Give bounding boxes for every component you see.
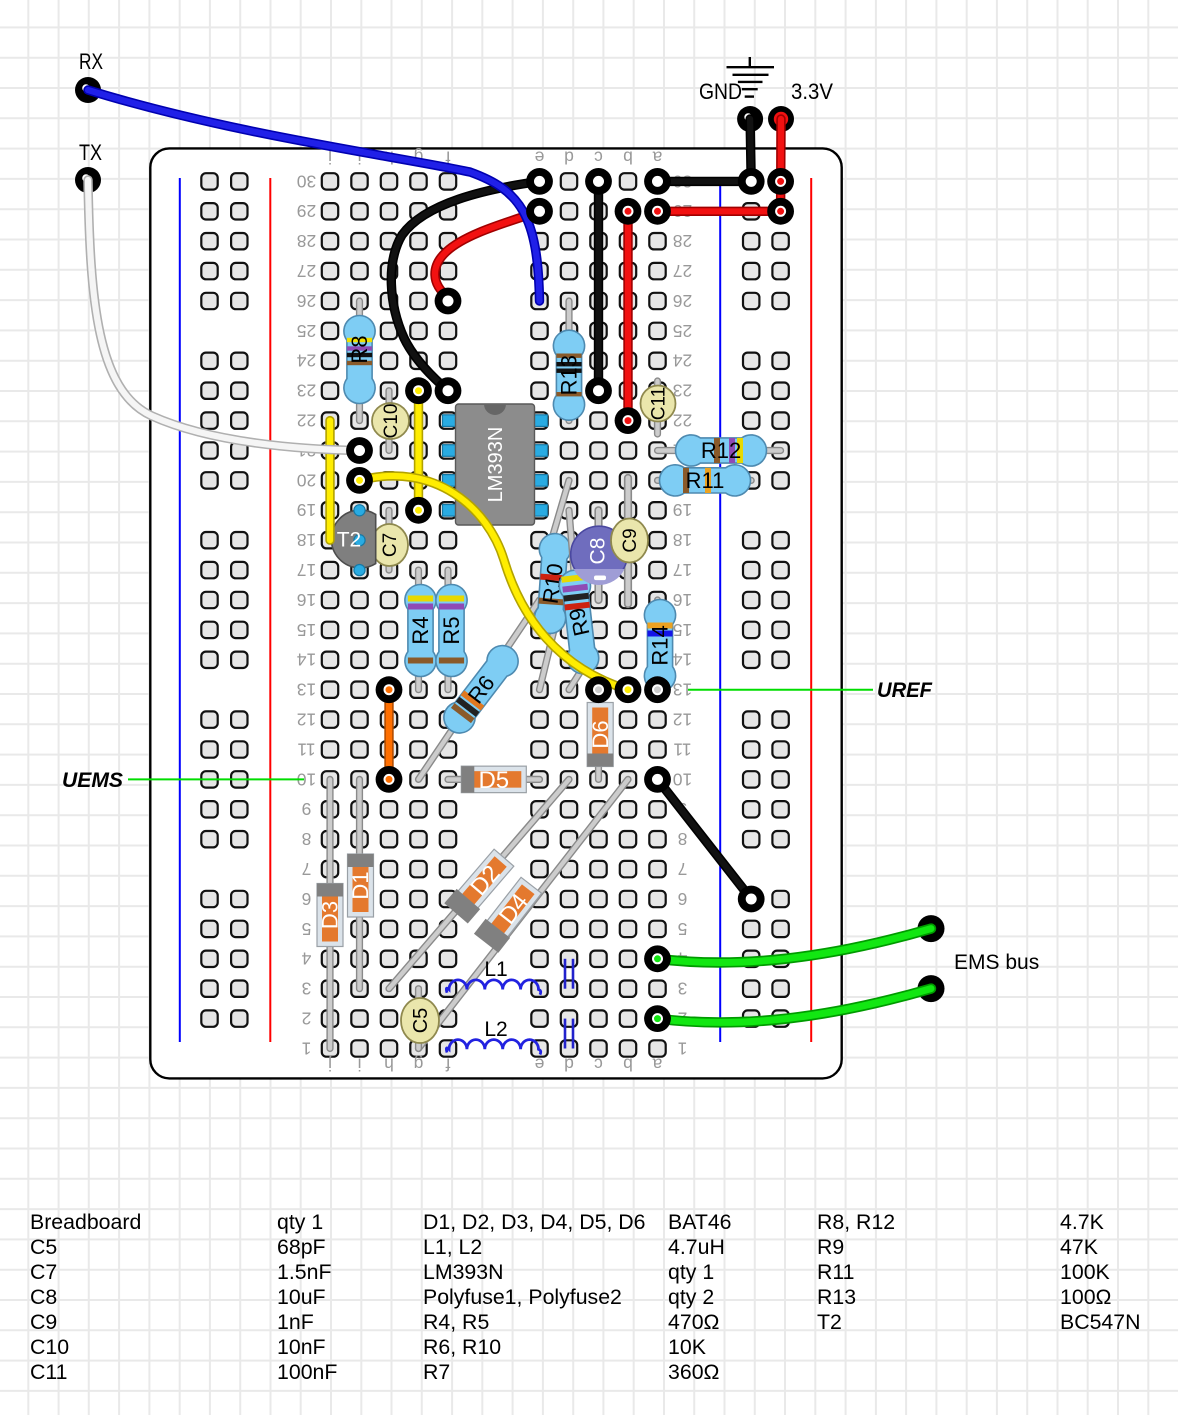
svg-text:R9: R9 [817, 1235, 844, 1259]
svg-text:12: 12 [297, 709, 316, 729]
svg-text:C7: C7 [30, 1260, 57, 1284]
svg-text:R7: R7 [423, 1360, 450, 1384]
svg-text:22: 22 [673, 410, 692, 430]
svg-text:10: 10 [673, 769, 693, 789]
svg-text:qty 1: qty 1 [277, 1210, 323, 1234]
svg-text:8: 8 [678, 829, 688, 849]
svg-text:T2: T2 [337, 528, 362, 551]
svg-text:Polyfuse1, Polyfuse2: Polyfuse1, Polyfuse2 [423, 1285, 622, 1309]
svg-text:26: 26 [297, 291, 316, 311]
svg-text:8: 8 [302, 829, 312, 849]
svg-text:4.7K: 4.7K [1060, 1210, 1104, 1234]
svg-text:D6: D6 [588, 720, 613, 748]
svg-text:27: 27 [673, 261, 692, 281]
svg-text:18: 18 [673, 530, 692, 550]
svg-text:D1, D2, D3, D4, D5, D6: D1, D2, D3, D4, D5, D6 [423, 1210, 646, 1234]
svg-text:R4: R4 [408, 616, 433, 644]
svg-text:28: 28 [673, 231, 692, 251]
svg-text:R8, R12: R8, R12 [817, 1210, 895, 1234]
svg-text:19: 19 [297, 500, 316, 520]
svg-text:14: 14 [297, 650, 317, 670]
svg-text:RX: RX [79, 49, 103, 74]
svg-text:b: b [623, 147, 633, 167]
svg-text:C11: C11 [649, 387, 670, 420]
svg-text:68pF: 68pF [277, 1235, 326, 1259]
svg-text:R4, R5: R4, R5 [423, 1310, 489, 1334]
svg-text:100Ω: 100Ω [1060, 1285, 1111, 1309]
svg-text:27: 27 [297, 261, 316, 281]
svg-text:24: 24 [297, 351, 317, 371]
svg-text:14: 14 [673, 650, 693, 670]
svg-text:R13: R13 [817, 1285, 856, 1309]
svg-text:UREF: UREF [877, 679, 933, 702]
svg-text:23: 23 [297, 381, 316, 401]
svg-text:d: d [564, 147, 574, 167]
svg-text:23: 23 [673, 381, 692, 401]
svg-text:10nF: 10nF [277, 1335, 326, 1359]
svg-text:C11: C11 [30, 1360, 68, 1384]
svg-text:18: 18 [297, 530, 316, 550]
svg-text:c: c [594, 1054, 603, 1074]
svg-text:1: 1 [678, 1038, 688, 1058]
svg-text:R8: R8 [347, 335, 372, 363]
svg-text:h: h [384, 1054, 394, 1074]
svg-text:L1, L2: L1, L2 [423, 1235, 482, 1259]
svg-text:3.3V: 3.3V [791, 79, 833, 104]
svg-text:R13: R13 [557, 355, 582, 395]
svg-text:i: i [358, 1054, 362, 1074]
svg-text:17: 17 [673, 560, 692, 580]
svg-text:7: 7 [302, 859, 312, 879]
svg-text:25: 25 [297, 321, 316, 341]
svg-text:a: a [652, 1054, 662, 1074]
svg-text:2: 2 [302, 1008, 312, 1028]
svg-text:C9: C9 [30, 1310, 57, 1334]
svg-text:10K: 10K [668, 1335, 706, 1359]
svg-text:28: 28 [297, 231, 316, 251]
svg-text:d: d [564, 1054, 574, 1074]
svg-text:15: 15 [673, 620, 692, 640]
svg-text:c: c [594, 147, 603, 167]
svg-text:EMS bus: EMS bus [954, 951, 1039, 974]
svg-text:LM393N: LM393N [423, 1260, 504, 1284]
svg-text:TX: TX [79, 140, 102, 165]
svg-text:9: 9 [302, 799, 312, 819]
svg-text:C10: C10 [30, 1335, 69, 1359]
svg-text:R5: R5 [439, 616, 464, 644]
svg-text:360Ω: 360Ω [668, 1360, 719, 1384]
svg-text:GND: GND [699, 79, 742, 104]
svg-text:6: 6 [302, 889, 312, 909]
svg-text:3: 3 [678, 979, 688, 999]
svg-text:16: 16 [673, 590, 692, 610]
svg-text:3: 3 [302, 979, 312, 999]
svg-text:C10: C10 [381, 404, 402, 439]
svg-text:C9: C9 [620, 528, 641, 552]
svg-text:UEMS: UEMS [62, 769, 123, 792]
svg-text:e: e [535, 1054, 545, 1074]
svg-text:16: 16 [297, 590, 316, 610]
svg-text:100nF: 100nF [277, 1360, 337, 1384]
svg-text:11: 11 [297, 739, 315, 759]
svg-text:R14: R14 [648, 625, 673, 665]
svg-text:29: 29 [297, 201, 316, 221]
svg-text:26: 26 [673, 291, 692, 311]
svg-text:a: a [652, 147, 662, 167]
svg-text:C8: C8 [586, 538, 609, 565]
svg-text:4.7uH: 4.7uH [668, 1235, 725, 1259]
svg-text:6: 6 [678, 889, 688, 909]
svg-text:BAT46: BAT46 [668, 1210, 732, 1234]
svg-text:47K: 47K [1060, 1235, 1098, 1259]
svg-text:11: 11 [673, 739, 691, 759]
svg-text:L1: L1 [484, 958, 507, 981]
svg-text:C5: C5 [30, 1235, 57, 1259]
svg-text:R6, R10: R6, R10 [423, 1335, 501, 1359]
svg-text:24: 24 [673, 351, 693, 371]
svg-text:R11: R11 [817, 1260, 855, 1284]
svg-text:17: 17 [297, 560, 316, 580]
svg-text:1.5nF: 1.5nF [277, 1260, 331, 1284]
svg-text:5: 5 [678, 919, 688, 939]
svg-text:19: 19 [673, 500, 692, 520]
svg-text:T2: T2 [817, 1310, 842, 1334]
svg-text:C7: C7 [380, 533, 401, 557]
svg-text:e: e [535, 147, 545, 167]
svg-text:1nF: 1nF [277, 1310, 314, 1334]
svg-text:L2: L2 [484, 1018, 507, 1041]
svg-text:BC547N: BC547N [1060, 1310, 1141, 1334]
svg-text:C5: C5 [410, 1008, 432, 1034]
svg-text:qty 1: qty 1 [668, 1260, 714, 1284]
svg-text:20: 20 [297, 470, 317, 490]
svg-text:5: 5 [302, 919, 312, 939]
svg-text:30: 30 [297, 171, 317, 191]
svg-text:10uF: 10uF [277, 1285, 326, 1309]
svg-text:25: 25 [673, 321, 692, 341]
svg-text:15: 15 [297, 620, 316, 640]
svg-text:D3: D3 [318, 901, 343, 929]
svg-text:LM393N: LM393N [485, 427, 507, 503]
svg-text:470Ω: 470Ω [668, 1310, 719, 1334]
svg-text:22: 22 [297, 410, 316, 430]
svg-text:Breadboard: Breadboard [30, 1210, 141, 1234]
svg-text:b: b [623, 1054, 633, 1074]
svg-text:j: j [328, 1054, 333, 1074]
svg-text:12: 12 [673, 709, 692, 729]
svg-text:100K: 100K [1060, 1260, 1110, 1284]
svg-text:13: 13 [297, 680, 316, 700]
svg-text:D5: D5 [478, 767, 509, 794]
svg-text:D1: D1 [348, 871, 373, 899]
svg-text:1: 1 [302, 1038, 312, 1058]
svg-text:C8: C8 [30, 1285, 57, 1309]
svg-text:7: 7 [678, 859, 688, 879]
svg-text:R12: R12 [701, 438, 741, 463]
svg-text:f: f [445, 1054, 450, 1074]
svg-text:4: 4 [301, 949, 311, 969]
svg-text:qty 2: qty 2 [668, 1285, 714, 1309]
svg-text:g: g [414, 1054, 424, 1074]
svg-text:R11: R11 [686, 468, 725, 493]
